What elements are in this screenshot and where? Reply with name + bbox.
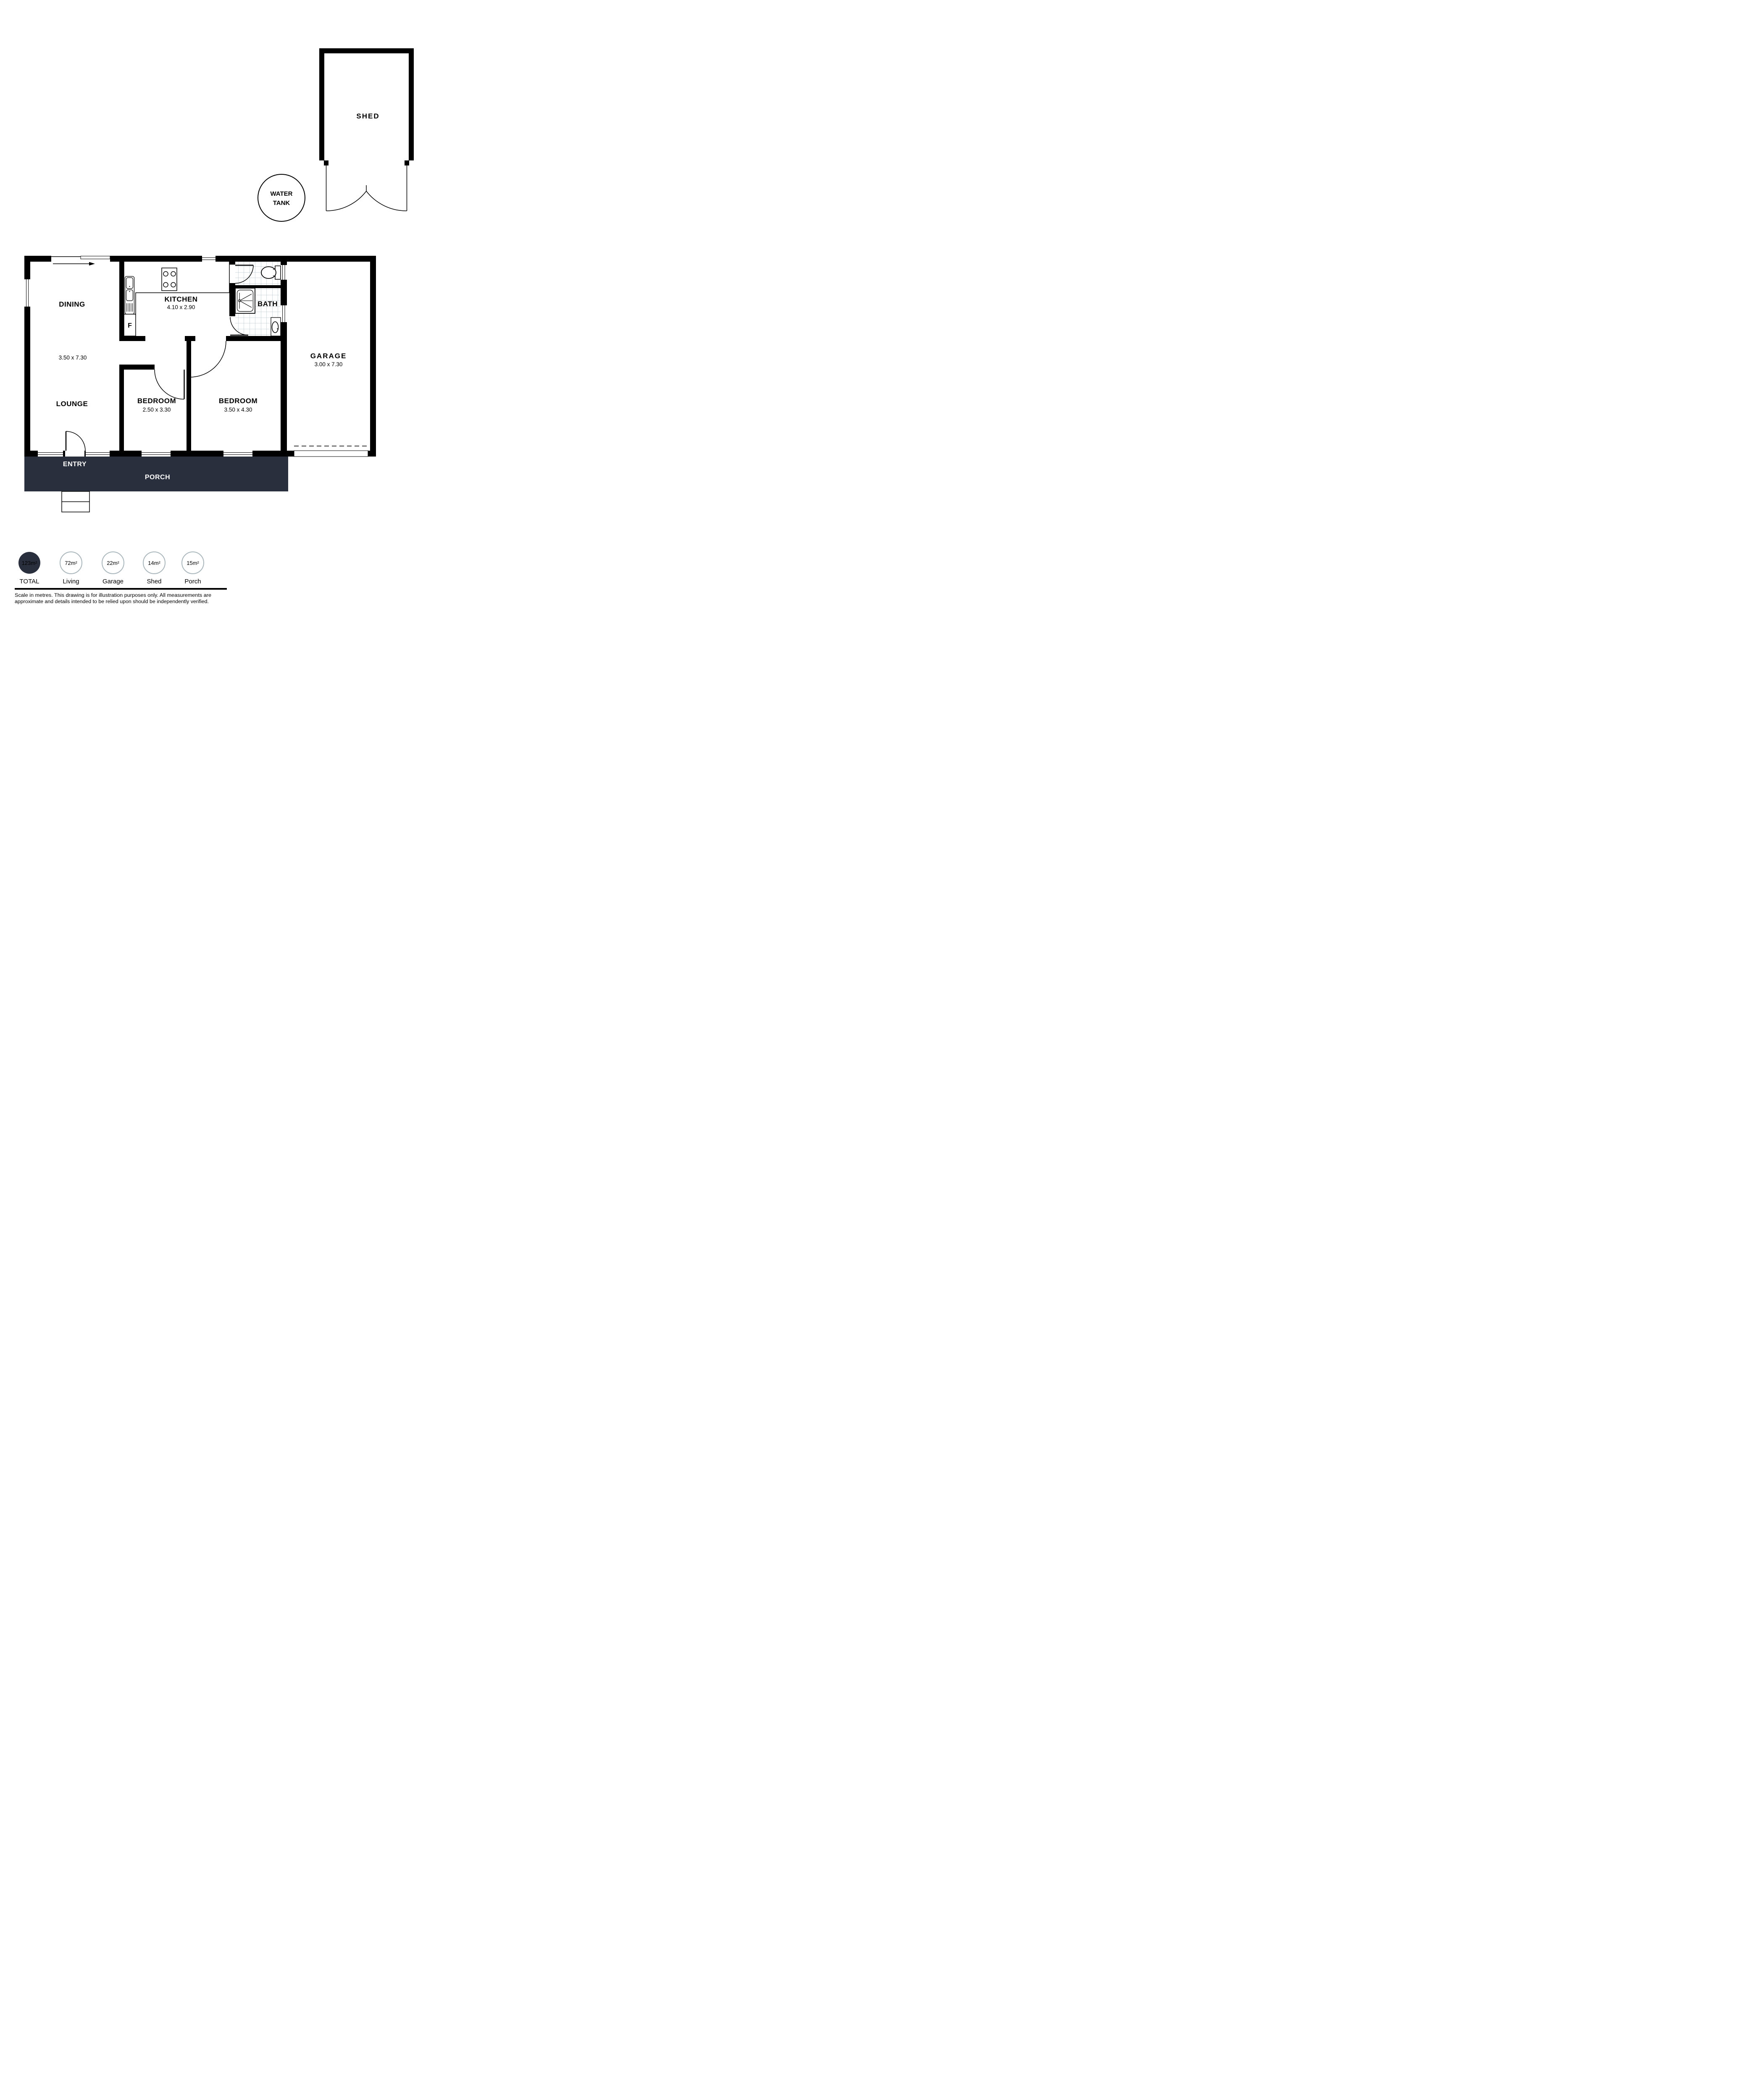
footer-disclaimer-line1: Scale in metres. This drawing is for ill…	[15, 593, 211, 598]
wall-bedroom-small-top	[119, 365, 155, 370]
sliding-door-arrow-icon	[53, 262, 95, 265]
bath-label: BATH	[258, 300, 278, 308]
shed-door-jamb-left	[324, 160, 328, 165]
bedroom-small-door	[155, 370, 184, 399]
footer-disclaimer-line2: approximate and details intended to be r…	[15, 599, 209, 604]
legend-value-total: 123m²	[22, 560, 38, 566]
legend-value-porch: 15m²	[187, 560, 199, 566]
legend-item-living: 72m² Living	[60, 552, 82, 585]
shed: SHED	[319, 48, 414, 211]
living-dims: 3.50 x 7.30	[59, 354, 87, 361]
wall-lounge-bedroom	[119, 365, 124, 451]
wall-hall-segment-2	[185, 336, 195, 341]
bedroom-large-door	[190, 341, 226, 377]
garage-door	[294, 446, 368, 457]
water-tank-label-line1: WATER	[270, 190, 292, 197]
toilet-icon	[261, 266, 281, 279]
water-tank: WATER TANK	[258, 174, 305, 221]
legend-item-garage: 22m² Garage	[102, 552, 124, 585]
porch-label: PORCH	[145, 474, 170, 481]
garage-label: GARAGE	[310, 352, 347, 360]
sink-icon	[125, 276, 134, 314]
legend-item-shed: 14m² Shed	[143, 552, 165, 585]
water-tank-circle	[258, 174, 305, 221]
window-bedroom-small	[142, 451, 171, 457]
legend-value-living: 72m²	[65, 560, 77, 566]
porch-steps	[62, 491, 89, 512]
window-lounge-left	[38, 451, 63, 457]
entry-door	[65, 431, 85, 457]
area-legend: 123m² TOTAL 72m² Living 22m² Garage 14m²…	[18, 552, 204, 585]
entry-label: ENTRY	[63, 461, 87, 468]
wall-right	[370, 256, 376, 457]
bedroom-small-label: BEDROOM	[137, 397, 176, 405]
basin-icon	[271, 318, 281, 336]
shed-wall-right	[409, 48, 414, 160]
floor-plan-page: SHED WATER TANK	[0, 0, 434, 614]
legend-label-total: TOTAL	[20, 578, 39, 585]
sliding-door	[51, 256, 110, 262]
legend-value-shed: 14m²	[148, 560, 160, 566]
window-bath-side	[281, 305, 287, 322]
legend-label-shed: Shed	[147, 578, 161, 585]
window-wc-side	[281, 265, 287, 280]
legend-item-total: 123m² TOTAL	[18, 552, 40, 585]
garage-dims: 3.00 x 7.30	[315, 361, 343, 367]
window-bedroom-large	[223, 451, 252, 457]
legend-label-porch: Porch	[184, 578, 201, 585]
shed-door-jamb-right	[405, 160, 409, 165]
bedroom-small-dims: 2.50 x 3.30	[143, 407, 171, 413]
window-kitchen-top	[202, 256, 215, 262]
footer: Scale in metres. This drawing is for ill…	[15, 588, 227, 604]
porch: ENTRY PORCH	[24, 457, 288, 512]
water-tank-label-line2: TANK	[273, 199, 290, 207]
shed-label: SHED	[356, 112, 379, 120]
shower-icon	[235, 288, 255, 313]
kitchen-dims: 4.10 x 2.90	[167, 304, 195, 310]
legend-item-porch: 15m² Porch	[182, 552, 204, 585]
wall-wc-bath-divider	[229, 285, 287, 288]
dining-label: DINING	[59, 300, 85, 308]
shed-wall-left	[319, 48, 324, 160]
fridge: F	[124, 314, 136, 336]
lounge-label: LOUNGE	[56, 400, 88, 408]
shed-wall-top	[319, 48, 414, 53]
wall-garage-left-a	[281, 262, 287, 265]
kitchen-label: KITCHEN	[164, 295, 197, 303]
legend-label-living: Living	[63, 578, 79, 585]
window-lounge-right	[86, 451, 110, 457]
wall-wc-left-a	[229, 262, 235, 265]
wall-bath-bottom	[226, 336, 287, 341]
wall-garage-left-c	[281, 322, 287, 451]
wall-hall-segment-1	[119, 336, 145, 341]
stove-icon	[162, 268, 177, 291]
legend-label-garage: Garage	[102, 578, 124, 585]
shed-double-door-icon	[326, 165, 407, 211]
bedroom-large-label: BEDROOM	[219, 397, 258, 405]
wall-garage-left-b	[281, 280, 287, 305]
footer-divider	[15, 588, 227, 590]
bedroom-large-dims: 3.50 x 4.30	[224, 407, 252, 413]
floor-plan-drawing: SHED WATER TANK	[0, 0, 434, 614]
window-dining-left	[24, 279, 30, 307]
wall-kitchen-left	[119, 262, 124, 336]
legend-value-garage: 22m²	[107, 560, 119, 566]
wall-bedroom-divider	[187, 341, 191, 451]
fridge-label: F	[128, 322, 132, 329]
